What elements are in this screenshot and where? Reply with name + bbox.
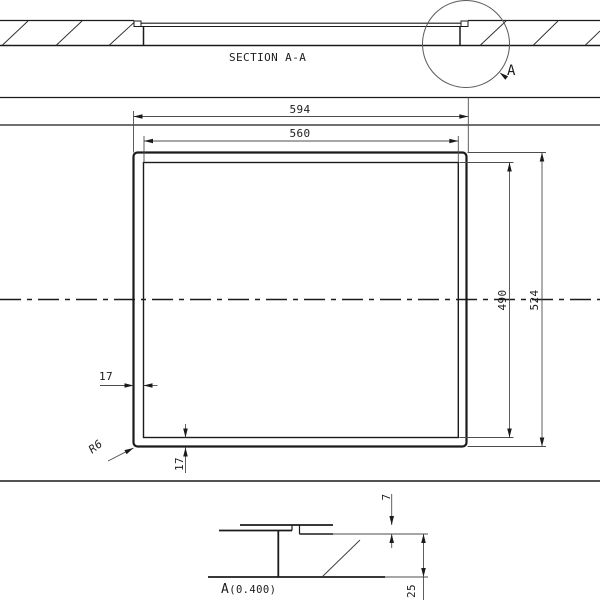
drawing-canvas: SECTION A-A A 594 560 490 524 17 17 R6 7…: [0, 0, 600, 600]
radius-leader: [108, 448, 134, 461]
detail-view-name: A: [221, 582, 229, 597]
dim-label-outer-width: 594: [284, 104, 316, 116]
plan-view: [0, 98, 600, 482]
panel-right-tab: [461, 21, 468, 27]
plan-dimensions: [100, 98, 546, 474]
detail-diagonal: [322, 540, 360, 577]
drawing-linework: [0, 0, 600, 600]
dim-left-offset: [100, 383, 158, 388]
section-hatch-right: [480, 21, 600, 46]
detail-view-scale: (0.400): [229, 584, 276, 596]
dim-label-depth: 25: [406, 581, 418, 600]
detail-view-title: A(0.400): [221, 584, 276, 596]
section-title: SECTION A-A: [229, 52, 306, 64]
section-hatch-left: [2, 21, 134, 46]
dim-label-inner-height: 490: [497, 288, 509, 312]
dim-label-outer-height: 524: [529, 288, 541, 312]
detail-marker-label: A: [507, 65, 515, 77]
dim-label-left-offset: 17: [92, 371, 120, 383]
dim-label-bottom-offset: 17: [174, 454, 186, 474]
detail-circle: [423, 1, 510, 88]
dim-label-lip-height: 7: [381, 490, 393, 504]
dim-depth: [421, 534, 426, 600]
dim-label-inner-width: 560: [284, 128, 316, 140]
panel-left-tab: [134, 21, 141, 27]
